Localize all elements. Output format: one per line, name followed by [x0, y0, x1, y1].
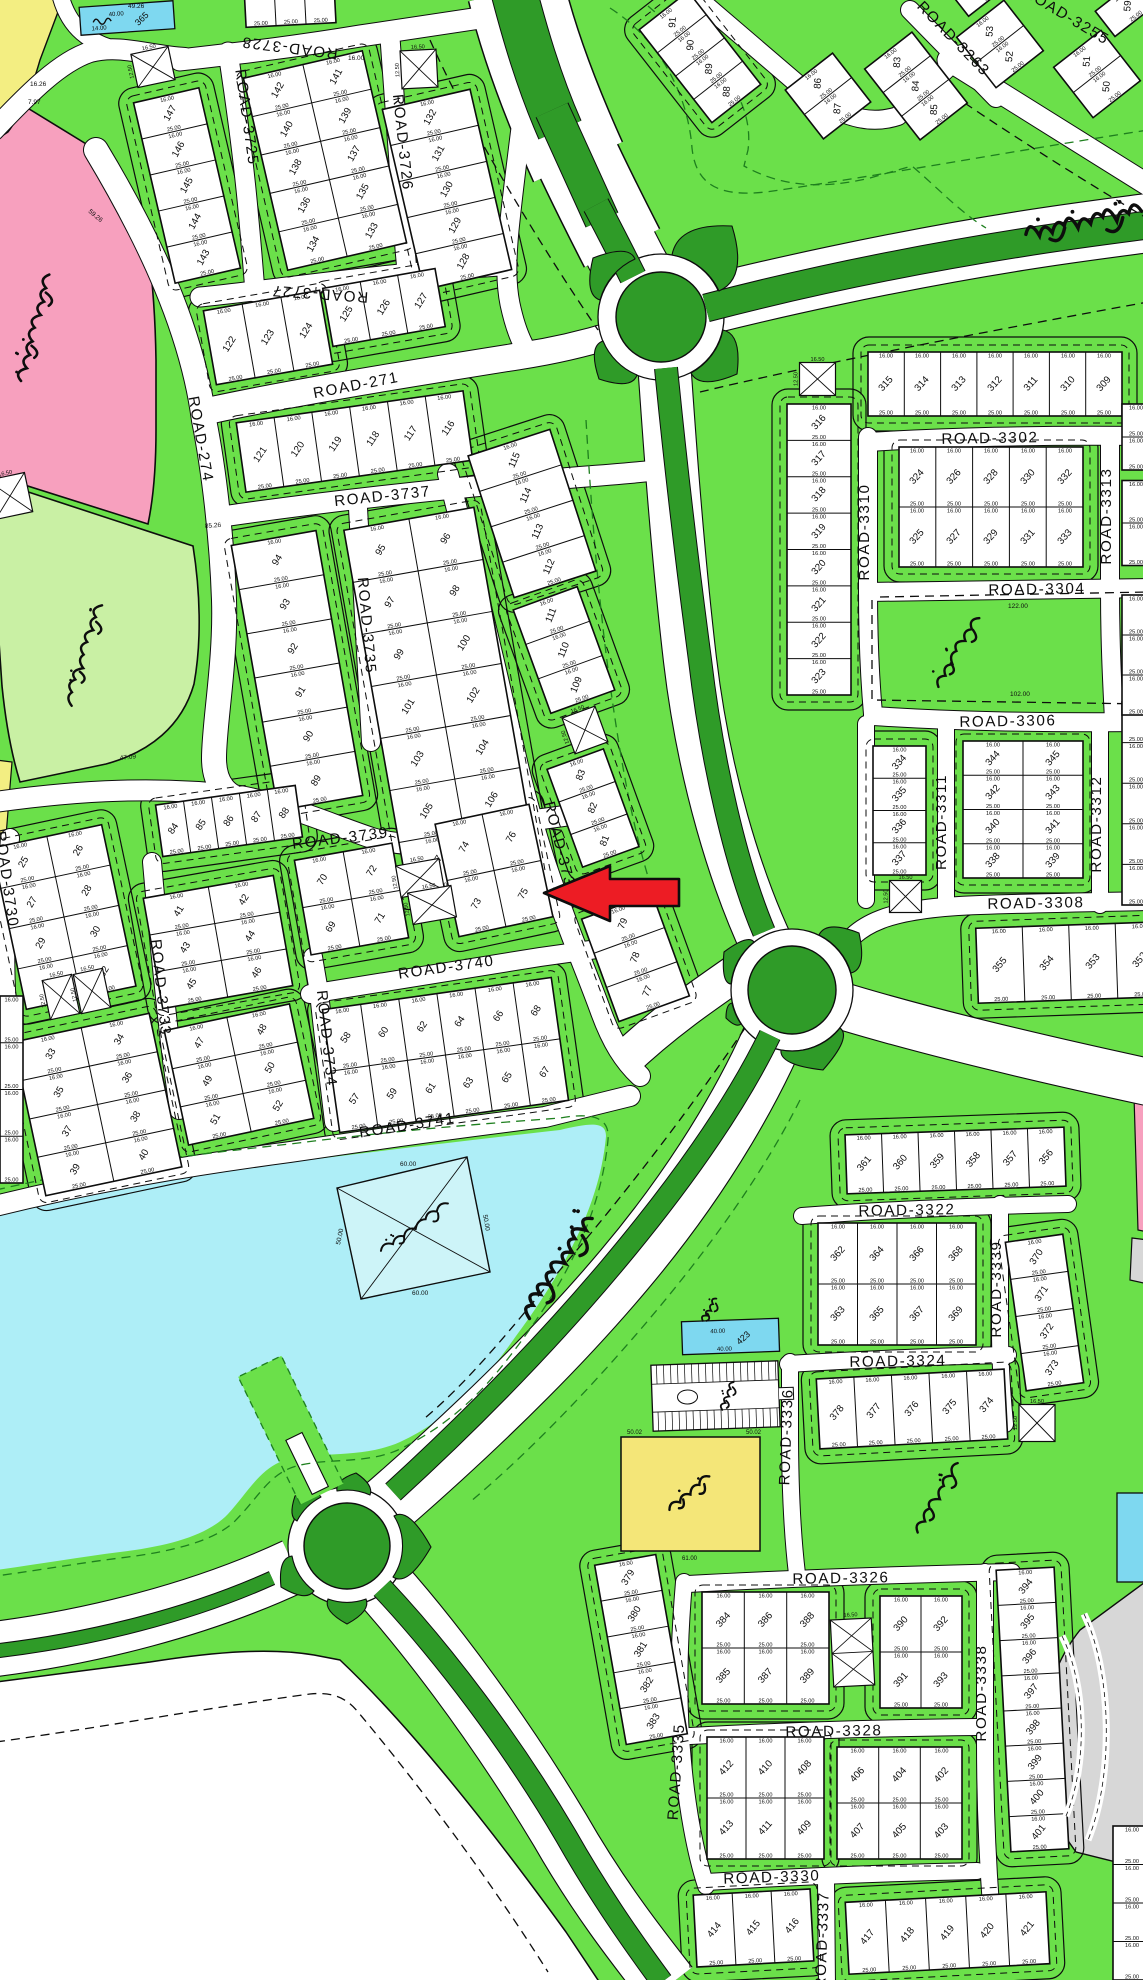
svg-text:16.00: 16.00	[1125, 1828, 1139, 1834]
svg-text:16.00: 16.00	[812, 406, 826, 412]
svg-text:14.00: 14.00	[92, 25, 108, 32]
svg-text:25.00: 25.00	[988, 411, 1002, 417]
svg-text:25.00: 25.00	[893, 1854, 907, 1860]
svg-text:16.00: 16.00	[812, 587, 826, 593]
svg-text:25.00: 25.00	[1097, 411, 1111, 417]
svg-text:16.00: 16.00	[984, 449, 998, 455]
svg-text:16.00: 16.00	[879, 354, 893, 360]
svg-text:16.00: 16.00	[851, 1805, 865, 1811]
svg-text:25.00: 25.00	[858, 1187, 872, 1193]
svg-text:16.00: 16.00	[1061, 354, 1075, 360]
svg-text:ROAD-3310: ROAD-3310	[856, 483, 873, 580]
svg-text:25.00: 25.00	[759, 1854, 773, 1860]
svg-text:25.00: 25.00	[986, 873, 1000, 879]
svg-text:25.00: 25.00	[934, 1703, 948, 1709]
svg-text:16.00: 16.00	[759, 1800, 773, 1806]
svg-text:16.00: 16.00	[1125, 1866, 1139, 1872]
svg-text:25.00: 25.00	[1033, 1844, 1047, 1851]
svg-text:16.00: 16.00	[348, 55, 365, 62]
svg-text:25.00: 25.00	[759, 1699, 773, 1705]
svg-text:16.00: 16.00	[1046, 811, 1060, 817]
svg-text:25.00: 25.00	[720, 1854, 734, 1860]
svg-text:ROAD-3306: ROAD-3306	[959, 712, 1056, 731]
svg-text:16.50: 16.50	[1030, 1399, 1044, 1405]
svg-text:25.00: 25.00	[812, 544, 826, 550]
svg-text:50: 50	[1101, 80, 1113, 92]
svg-text:25.00: 25.00	[748, 1958, 762, 1965]
svg-text:25.00: 25.00	[5, 1037, 19, 1043]
svg-text:25.00: 25.00	[5, 1178, 19, 1184]
svg-text:16.00: 16.00	[5, 998, 19, 1004]
svg-text:25.00: 25.00	[915, 411, 929, 417]
svg-text:85: 85	[929, 103, 941, 115]
svg-text:16.00: 16.00	[717, 1594, 731, 1600]
svg-text:16.00: 16.00	[759, 1594, 773, 1600]
svg-text:16.50: 16.50	[411, 44, 425, 51]
svg-text:25.00: 25.00	[1058, 562, 1072, 568]
svg-text:25.00: 25.00	[717, 1699, 731, 1705]
svg-text:16.00: 16.00	[1129, 866, 1143, 872]
svg-text:84: 84	[910, 80, 922, 92]
svg-text:25.00: 25.00	[1024, 411, 1038, 417]
svg-text:16.00: 16.00	[893, 1749, 907, 1755]
svg-text:16.00: 16.00	[978, 1371, 992, 1378]
svg-text:25.00: 25.00	[1021, 562, 1035, 568]
svg-text:25.00: 25.00	[1021, 502, 1035, 508]
svg-text:16.00: 16.00	[831, 1286, 845, 1292]
svg-text:25.00: 25.00	[869, 1440, 883, 1447]
svg-text:25.00: 25.00	[759, 1643, 773, 1649]
svg-text:16.00: 16.00	[984, 509, 998, 515]
svg-text:12.50: 12.50	[794, 372, 800, 386]
svg-text:25.00: 25.00	[893, 805, 907, 811]
svg-text:16.00: 16.00	[986, 811, 1000, 817]
svg-text:25.00: 25.00	[967, 1184, 981, 1190]
svg-text:25.00: 25.00	[1129, 710, 1143, 716]
svg-text:16.00: 16.00	[1129, 785, 1143, 791]
svg-text:16.00: 16.00	[1019, 1894, 1033, 1901]
svg-text:25.00: 25.00	[949, 1340, 963, 1346]
svg-text:ROAD-3304: ROAD-3304	[988, 580, 1085, 599]
svg-text:16.00: 16.00	[812, 551, 826, 557]
svg-text:16.00: 16.00	[759, 1739, 773, 1745]
svg-text:16.00: 16.00	[899, 1900, 913, 1907]
svg-text:25.00: 25.00	[902, 1965, 916, 1972]
svg-text:25.00: 25.00	[812, 508, 826, 514]
svg-text:16.00: 16.00	[1129, 439, 1143, 445]
svg-text:25.00: 25.00	[942, 1963, 956, 1970]
svg-text:25.00: 25.00	[801, 1699, 815, 1705]
svg-text:25.00: 25.00	[947, 562, 961, 568]
svg-text:16.00: 16.00	[798, 1800, 812, 1806]
svg-text:60.00: 60.00	[400, 1161, 417, 1168]
svg-text:16.00: 16.00	[910, 509, 924, 515]
svg-text:16.00: 16.00	[949, 1286, 963, 1292]
svg-text:16.00: 16.00	[865, 1377, 879, 1384]
svg-text:16.00: 16.00	[979, 1896, 993, 1903]
svg-text:16.50: 16.50	[811, 357, 825, 363]
svg-text:16.00: 16.00	[801, 1594, 815, 1600]
svg-text:59: 59	[1122, 0, 1134, 12]
svg-text:50.02: 50.02	[746, 1430, 762, 1436]
svg-text:ROAD-3313: ROAD-3313	[1098, 467, 1115, 564]
svg-text:88: 88	[721, 85, 733, 97]
svg-text:25.00: 25.00	[893, 837, 907, 843]
svg-text:25.00: 25.00	[1004, 1182, 1018, 1188]
svg-text:25.00: 25.00	[1087, 993, 1101, 999]
svg-text:16.00: 16.00	[986, 777, 1000, 783]
svg-text:ROAD-3312: ROAD-3312	[1088, 775, 1105, 872]
svg-text:16.00: 16.00	[952, 354, 966, 360]
svg-text:16.00: 16.00	[949, 1225, 963, 1231]
svg-text:16.00: 16.00	[910, 1286, 924, 1292]
svg-text:12.50: 12.50	[1013, 1416, 1019, 1430]
svg-text:16.00: 16.00	[720, 1800, 734, 1806]
svg-text:25.00: 25.00	[986, 838, 1000, 844]
svg-text:ROAD-3336: ROAD-3336	[776, 1388, 796, 1486]
svg-text:25.00: 25.00	[981, 1434, 995, 1441]
svg-text:25.00: 25.00	[812, 653, 826, 659]
svg-text:25.00: 25.00	[935, 1798, 949, 1804]
svg-text:102.00: 102.00	[1010, 691, 1030, 698]
svg-text:25.00: 25.00	[812, 435, 826, 441]
svg-text:16.00: 16.00	[893, 844, 907, 850]
svg-text:ROAD-3330: ROAD-3330	[723, 1867, 821, 1887]
svg-text:16.00: 16.00	[935, 1805, 949, 1811]
svg-text:16.50: 16.50	[843, 1612, 857, 1619]
svg-text:25.00: 25.00	[910, 1279, 924, 1285]
svg-text:25.00: 25.00	[1046, 873, 1060, 879]
svg-text:25.00: 25.00	[717, 1643, 731, 1649]
svg-text:ROAD-3324: ROAD-3324	[849, 1352, 946, 1371]
svg-text:16.00: 16.00	[893, 748, 907, 754]
svg-text:ROAD-3302: ROAD-3302	[941, 429, 1038, 448]
svg-text:16.00: 16.00	[812, 624, 826, 630]
svg-text:16.00: 16.00	[915, 354, 929, 360]
svg-text:25.00: 25.00	[851, 1854, 865, 1860]
svg-text:16.00: 16.00	[828, 1379, 842, 1386]
svg-text:16.00: 16.00	[1022, 1640, 1036, 1647]
svg-text:25.00: 25.00	[907, 1438, 921, 1445]
svg-text:51: 51	[1081, 56, 1093, 68]
svg-text:90: 90	[685, 39, 697, 51]
svg-text:25.00: 25.00	[952, 411, 966, 417]
svg-text:16.00: 16.00	[1021, 509, 1035, 515]
svg-text:25.00: 25.00	[894, 1647, 908, 1653]
svg-text:16.00: 16.00	[1129, 525, 1143, 531]
svg-text:16.00: 16.00	[5, 1044, 19, 1050]
svg-text:25.00: 25.00	[934, 1647, 948, 1653]
svg-text:12.50: 12.50	[884, 890, 890, 904]
svg-text:16.00: 16.00	[1002, 1130, 1016, 1136]
svg-text:16.00: 16.00	[1026, 1711, 1040, 1718]
svg-text:60.00: 60.00	[412, 1290, 429, 1297]
svg-text:16.00: 16.00	[1132, 924, 1143, 930]
svg-text:25.00: 25.00	[5, 1084, 19, 1090]
svg-text:25.00: 25.00	[812, 690, 826, 696]
svg-text:16.00: 16.00	[1125, 1943, 1139, 1949]
svg-text:25.00: 25.00	[986, 770, 1000, 776]
svg-text:25.00: 25.00	[910, 502, 924, 508]
svg-text:16.00: 16.00	[1046, 777, 1060, 783]
svg-text:25.00: 25.00	[1020, 1598, 1034, 1605]
svg-text:16.00: 16.00	[1020, 1605, 1034, 1612]
svg-text:16.00: 16.00	[812, 660, 826, 666]
svg-text:16.00: 16.00	[1029, 1781, 1043, 1788]
svg-text:16.00: 16.00	[988, 354, 1002, 360]
svg-text:16.00: 16.00	[1046, 845, 1060, 851]
svg-text:16.26: 16.26	[30, 81, 47, 88]
svg-text:25.00: 25.00	[1129, 778, 1143, 784]
svg-text:25.00: 25.00	[284, 19, 298, 26]
svg-text:25.00: 25.00	[1125, 1859, 1139, 1865]
svg-text:16.00: 16.00	[1027, 1746, 1041, 1753]
svg-text:16.00: 16.00	[1046, 743, 1060, 749]
svg-text:25.00: 25.00	[1025, 1704, 1039, 1711]
svg-text:25.00: 25.00	[945, 1436, 959, 1443]
svg-text:16.00: 16.00	[935, 1749, 949, 1755]
svg-text:ROAD-3328: ROAD-3328	[785, 1722, 882, 1741]
svg-text:25.00: 25.00	[831, 1279, 845, 1285]
svg-text:25.00: 25.00	[893, 1798, 907, 1804]
svg-text:25.00: 25.00	[870, 1279, 884, 1285]
svg-text:12.50: 12.50	[395, 63, 402, 77]
svg-text:25.00: 25.00	[801, 1643, 815, 1649]
svg-text:49.26: 49.26	[128, 3, 145, 10]
svg-text:25.00: 25.00	[1129, 518, 1143, 524]
svg-text:16.00: 16.00	[947, 449, 961, 455]
svg-text:16.00: 16.00	[894, 1654, 908, 1660]
svg-text:16.00: 16.00	[812, 515, 826, 521]
svg-text:16.00: 16.00	[870, 1286, 884, 1292]
svg-text:16.00: 16.00	[5, 1091, 19, 1097]
svg-text:25.00: 25.00	[832, 1442, 846, 1449]
svg-text:16.00: 16.00	[947, 509, 961, 515]
svg-text:25.00: 25.00	[798, 1854, 812, 1860]
svg-text:16.00: 16.00	[1024, 1675, 1038, 1682]
svg-text:25.00: 25.00	[759, 1793, 773, 1799]
svg-text:16.00: 16.00	[1129, 825, 1143, 831]
svg-text:25.00: 25.00	[894, 1186, 908, 1192]
svg-text:25.00: 25.00	[1125, 1936, 1139, 1942]
svg-text:25.00: 25.00	[1129, 432, 1143, 438]
svg-text:86: 86	[812, 77, 824, 89]
svg-text:25.00: 25.00	[1134, 992, 1143, 998]
svg-text:25.00: 25.00	[787, 1956, 801, 1963]
svg-text:25.00: 25.00	[1125, 1975, 1139, 1981]
svg-text:7.97: 7.97	[28, 99, 41, 106]
svg-text:25.00: 25.00	[1129, 630, 1143, 636]
svg-text:85.26: 85.26	[205, 522, 222, 530]
svg-text:25.00: 25.00	[1129, 465, 1143, 471]
svg-text:25.00: 25.00	[812, 617, 826, 623]
svg-text:25.00: 25.00	[1046, 770, 1060, 776]
svg-text:16.00: 16.00	[1058, 509, 1072, 515]
svg-text:25.00: 25.00	[879, 411, 893, 417]
svg-text:25.00: 25.00	[1129, 859, 1143, 865]
svg-text:25.00: 25.00	[984, 562, 998, 568]
svg-text:ROAD-3311: ROAD-3311	[933, 774, 950, 870]
svg-text:25.00: 25.00	[1061, 411, 1075, 417]
svg-text:ROAD-3339: ROAD-3339	[988, 1240, 1005, 1337]
svg-text:25.00: 25.00	[1029, 1774, 1043, 1781]
svg-text:16.00: 16.00	[831, 1225, 845, 1231]
svg-text:25.00: 25.00	[982, 1961, 996, 1968]
svg-text:25.00: 25.00	[935, 1854, 949, 1860]
svg-text:16.00: 16.00	[934, 1654, 948, 1660]
svg-text:16.00: 16.00	[1097, 354, 1111, 360]
svg-text:16.00: 16.00	[893, 780, 907, 786]
svg-text:16.00: 16.00	[893, 1805, 907, 1811]
svg-text:25.00: 25.00	[1027, 1739, 1041, 1746]
svg-text:16.00: 16.00	[812, 478, 826, 484]
svg-text:16.00: 16.00	[1024, 354, 1038, 360]
svg-text:16.00: 16.00	[1129, 597, 1143, 603]
svg-text:25.00: 25.00	[910, 1340, 924, 1346]
svg-text:16.00: 16.00	[801, 1650, 815, 1656]
svg-text:16.00: 16.00	[1058, 449, 1072, 455]
svg-text:ROAD-3308: ROAD-3308	[987, 894, 1084, 913]
svg-text:16.00: 16.00	[859, 1902, 873, 1909]
svg-text:16.00: 16.00	[1129, 677, 1143, 683]
svg-text:25.00: 25.00	[862, 1967, 876, 1974]
svg-text:16.00: 16.00	[939, 1898, 953, 1905]
svg-text:ROAD-3322: ROAD-3322	[858, 1201, 955, 1220]
svg-text:16.00: 16.00	[870, 1225, 884, 1231]
svg-text:25.00: 25.00	[1129, 670, 1143, 676]
svg-text:16.00: 16.00	[1129, 637, 1143, 643]
svg-text:61.00: 61.00	[682, 1556, 698, 1562]
svg-text:25.00: 25.00	[1041, 995, 1055, 1001]
svg-text:25.00: 25.00	[870, 1340, 884, 1346]
svg-text:25.00: 25.00	[254, 21, 268, 28]
svg-text:25.00: 25.00	[1023, 1668, 1037, 1675]
svg-text:25.00: 25.00	[851, 1798, 865, 1804]
svg-text:16.00: 16.00	[857, 1135, 871, 1141]
svg-text:16.00: 16.00	[903, 1375, 917, 1382]
svg-text:25.00: 25.00	[893, 773, 907, 779]
svg-text:25.00: 25.00	[1022, 1633, 1036, 1640]
svg-text:16.00: 16.00	[992, 929, 1006, 935]
svg-text:16.00: 16.00	[759, 1650, 773, 1656]
svg-text:87: 87	[832, 103, 844, 115]
svg-text:25.00: 25.00	[812, 580, 826, 586]
svg-text:16.00: 16.00	[910, 449, 924, 455]
svg-text:16.00: 16.00	[717, 1650, 731, 1656]
svg-text:25.00: 25.00	[798, 1793, 812, 1799]
svg-text:16.00: 16.00	[1125, 1905, 1139, 1911]
svg-text:25.00: 25.00	[1129, 737, 1143, 743]
svg-text:25.00: 25.00	[1046, 838, 1060, 844]
svg-text:16.00: 16.00	[745, 1893, 759, 1900]
svg-text:25.00: 25.00	[949, 1279, 963, 1285]
svg-text:16.00: 16.00	[986, 743, 1000, 749]
svg-text:25.00: 25.00	[986, 804, 1000, 810]
svg-text:16.00: 16.00	[1085, 925, 1099, 931]
svg-text:16.00: 16.00	[784, 1891, 798, 1898]
svg-text:16.00: 16.00	[930, 1133, 944, 1139]
svg-text:16.00: 16.00	[1031, 1816, 1045, 1823]
svg-text:16.00: 16.00	[934, 1598, 948, 1604]
svg-text:25.00: 25.00	[947, 502, 961, 508]
svg-text:16.00: 16.00	[1129, 744, 1143, 750]
svg-text:ROAD-3338: ROAD-3338	[973, 1644, 990, 1741]
svg-text:ROAD-3337: ROAD-3337	[812, 1891, 832, 1980]
svg-text:25.00: 25.00	[1125, 1898, 1139, 1904]
svg-text:16.00: 16.00	[893, 812, 907, 818]
svg-text:25.00: 25.00	[5, 1131, 19, 1137]
svg-text:25.00: 25.00	[1129, 900, 1143, 906]
svg-text:25.00: 25.00	[709, 1960, 723, 1967]
svg-text:40.00: 40.00	[717, 1346, 733, 1353]
svg-text:25.00: 25.00	[314, 18, 328, 25]
svg-text:16.00: 16.00	[706, 1895, 720, 1902]
svg-text:16.00: 16.00	[910, 1225, 924, 1231]
svg-text:16.00: 16.00	[893, 1134, 907, 1140]
svg-text:53: 53	[984, 25, 996, 37]
svg-text:25.00: 25.00	[984, 502, 998, 508]
svg-text:ROAD-3326: ROAD-3326	[792, 1569, 889, 1588]
svg-text:25.00: 25.00	[1022, 1959, 1036, 1966]
svg-text:83: 83	[892, 56, 904, 68]
svg-text:25.00: 25.00	[831, 1340, 845, 1346]
svg-text:16.00: 16.00	[1129, 406, 1143, 412]
svg-text:16.00: 16.00	[1038, 1129, 1052, 1135]
svg-text:16.00: 16.00	[941, 1373, 955, 1380]
svg-text:91: 91	[667, 17, 679, 29]
svg-text:25.00: 25.00	[1031, 1809, 1045, 1816]
svg-text:52: 52	[1004, 51, 1016, 63]
svg-text:25.00: 25.00	[1046, 804, 1060, 810]
svg-text:25.00: 25.00	[931, 1185, 945, 1191]
svg-text:25.00: 25.00	[1058, 502, 1072, 508]
svg-text:25.00: 25.00	[910, 562, 924, 568]
svg-text:40.00: 40.00	[109, 11, 125, 18]
svg-text:16.00: 16.00	[851, 1749, 865, 1755]
svg-text:16.00: 16.00	[720, 1739, 734, 1745]
svg-text:25.00: 25.00	[1040, 1181, 1054, 1187]
svg-text:16.00: 16.00	[966, 1132, 980, 1138]
svg-text:25.00: 25.00	[1129, 560, 1143, 566]
svg-text:40.00: 40.00	[710, 1329, 726, 1336]
svg-text:122.00: 122.00	[1008, 603, 1028, 610]
svg-text:89: 89	[703, 63, 715, 75]
svg-text:16.00: 16.00	[1129, 482, 1143, 488]
svg-text:25.00: 25.00	[894, 1703, 908, 1709]
svg-text:16.00: 16.00	[894, 1598, 908, 1604]
svg-text:25.00: 25.00	[812, 471, 826, 477]
svg-text:16.00: 16.00	[1039, 927, 1053, 933]
svg-text:25.00: 25.00	[1129, 818, 1143, 824]
svg-text:16.00: 16.00	[986, 845, 1000, 851]
svg-text:25.00: 25.00	[994, 997, 1008, 1003]
svg-text:16.00: 16.00	[5, 1138, 19, 1144]
svg-text:25.00: 25.00	[720, 1793, 734, 1799]
svg-text:16.50: 16.50	[899, 875, 913, 881]
svg-text:50.02: 50.02	[627, 1430, 643, 1436]
svg-text:16.00: 16.00	[1021, 449, 1035, 455]
svg-text:16.00: 16.00	[812, 442, 826, 448]
svg-text:16.00: 16.00	[1018, 1570, 1032, 1577]
